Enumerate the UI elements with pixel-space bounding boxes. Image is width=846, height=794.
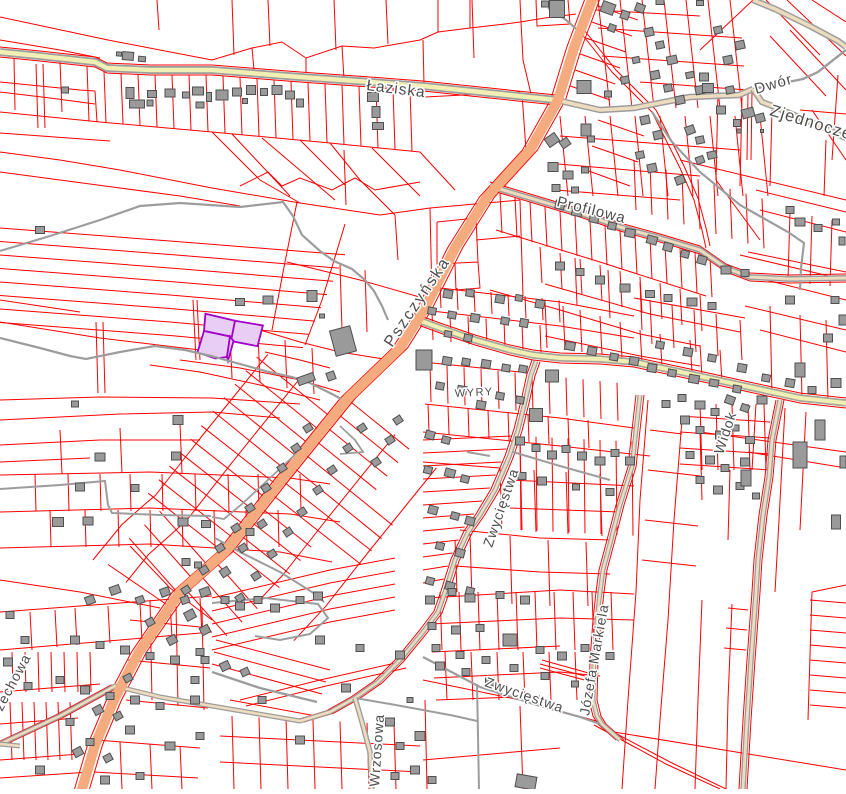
svg-text:WYRY: WYRY: [455, 386, 494, 400]
